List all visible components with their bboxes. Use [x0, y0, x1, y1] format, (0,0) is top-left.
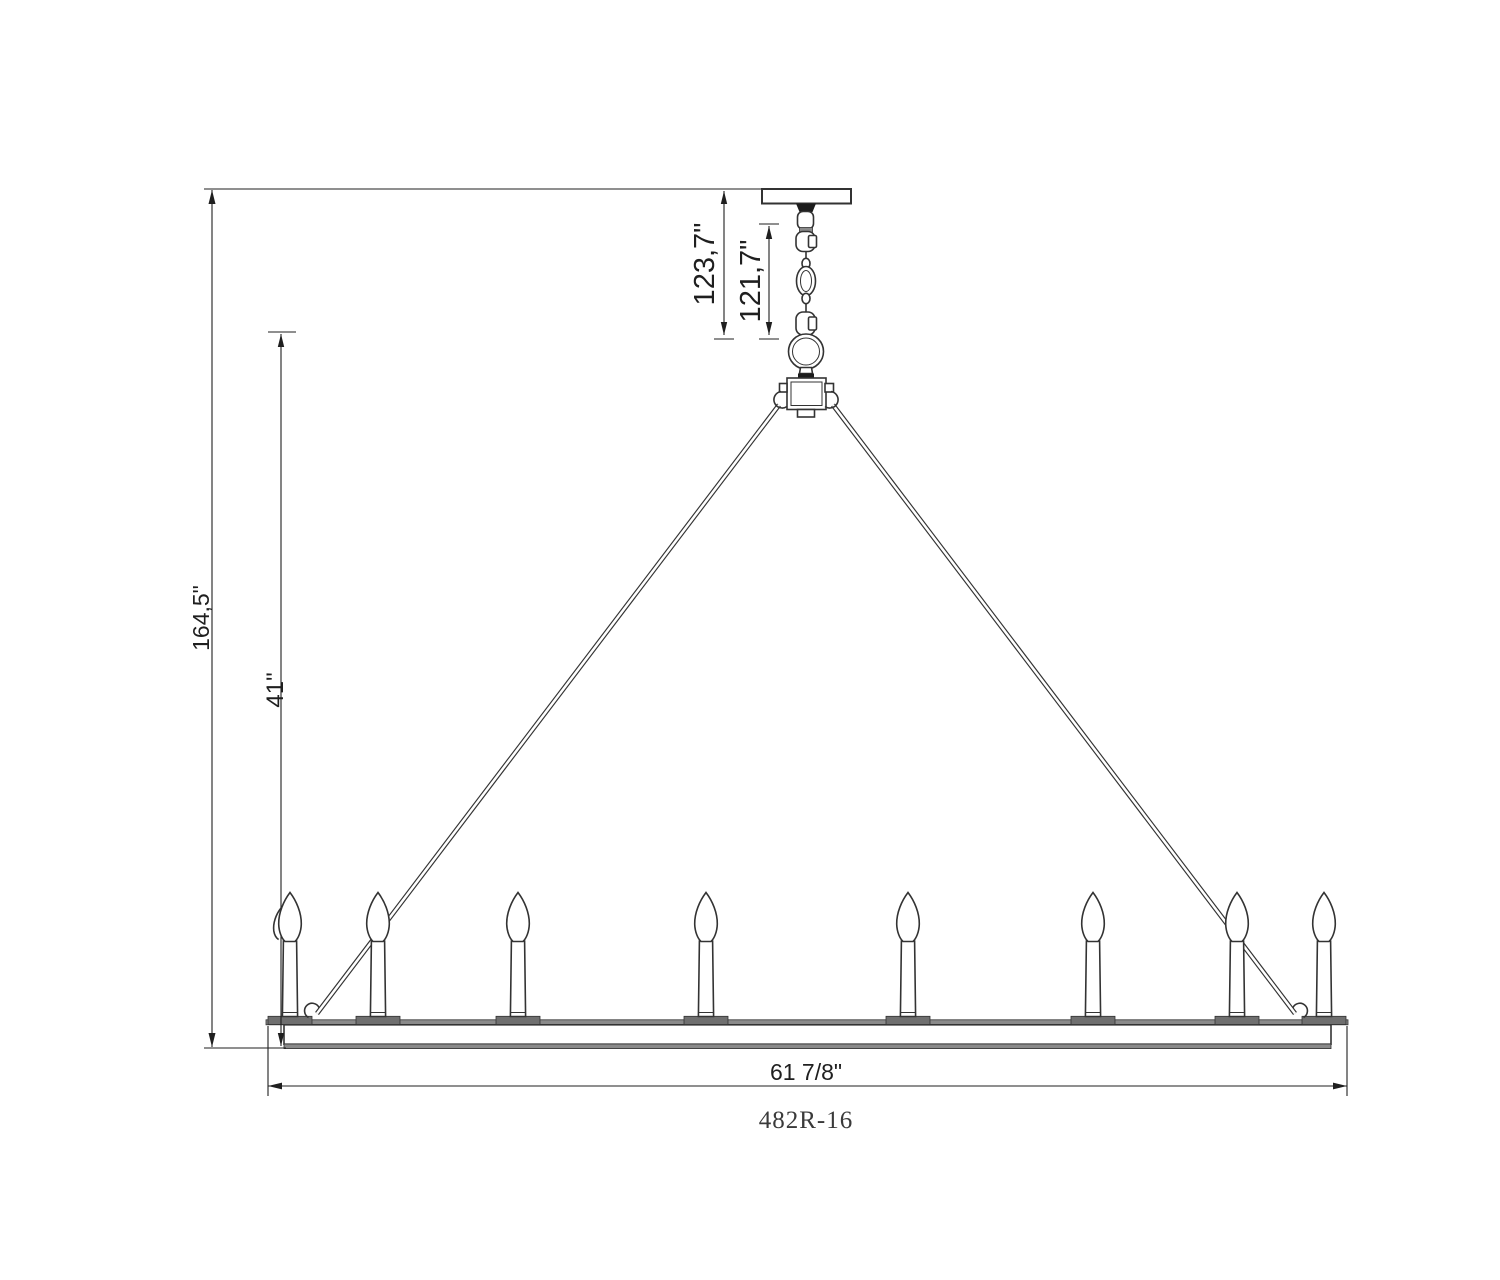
arrow-down-icon	[209, 1033, 216, 1047]
candle-base-plate	[356, 1016, 400, 1024]
canopy-to-ring-label: 123,7"	[689, 223, 721, 306]
hub-body	[787, 378, 826, 410]
candle-sleeve	[510, 941, 525, 1017]
candle	[1313, 893, 1336, 1017]
hub-neck	[800, 368, 813, 374]
dimension-canopy-to-ring: 123,7"	[689, 191, 734, 339]
carabiner-screw	[809, 317, 817, 330]
candle-bulb	[507, 893, 530, 942]
candle-bulb	[1313, 893, 1336, 942]
candle-bulb	[367, 893, 390, 942]
candle-sleeve	[1085, 941, 1100, 1017]
arrow-up-icon	[209, 190, 216, 204]
fixture-height-label: 41"	[262, 672, 289, 707]
ceiling-canopy	[762, 189, 851, 204]
candle-base-plate	[1302, 1016, 1346, 1024]
candle-sleeve	[698, 941, 713, 1017]
arrow-up-icon	[278, 334, 284, 347]
candle-base-plate	[1215, 1016, 1259, 1024]
candle-sleeve	[282, 941, 297, 1017]
candle-base-plate	[496, 1016, 540, 1024]
ring-bottom-flange	[284, 1044, 1331, 1049]
ring-bar-body	[284, 1025, 1331, 1044]
suspension-ring	[789, 334, 824, 369]
arrow-up-icon	[766, 226, 772, 239]
top-assembly	[762, 189, 851, 417]
dimension-overall-height: 164,5"	[188, 190, 216, 1047]
candle-sleeve	[900, 941, 915, 1017]
hub-hook-left	[774, 392, 787, 409]
dimension-annotations: 164,5" 41" 123,7" 121,7"	[188, 189, 1347, 1134]
candle	[507, 893, 530, 1017]
chain-length-label: 121,7"	[735, 240, 767, 323]
arrow-down-icon	[766, 322, 772, 335]
candle-sleeve	[1229, 941, 1244, 1017]
chain-link-small	[802, 293, 810, 303]
candle	[1082, 893, 1105, 1017]
candle-base-plate	[268, 1016, 312, 1024]
hanging-chain	[796, 212, 817, 336]
candle-base-plate	[684, 1016, 728, 1024]
ring-bar	[266, 1016, 1348, 1048]
hub-tab-bottom	[798, 410, 815, 418]
candle-bulb	[1082, 893, 1105, 942]
hub-hook-right	[825, 392, 838, 409]
candle-sleeve	[370, 941, 385, 1017]
candle-sleeve	[1316, 941, 1331, 1017]
ring-width-label: 61 7/8"	[770, 1059, 842, 1085]
candle	[897, 893, 920, 1017]
hub-tab-right	[825, 384, 834, 393]
candles	[279, 893, 1336, 1017]
dimension-drawing-canvas: 164,5" 41" 123,7" 121,7"	[0, 0, 1500, 1280]
arrow-down-icon	[721, 322, 727, 335]
candle	[695, 893, 718, 1017]
candle	[367, 893, 390, 1017]
candle-bulb	[695, 893, 718, 942]
candle-bulb	[1226, 893, 1249, 942]
arrow-up-icon	[721, 191, 727, 204]
carabiner-screw	[809, 236, 817, 248]
arrow-right-icon	[1333, 1083, 1347, 1090]
candle-base-plate	[1071, 1016, 1115, 1024]
candle	[1226, 893, 1249, 1017]
center-hub	[774, 368, 838, 418]
candle-base-plate	[886, 1016, 930, 1024]
arrow-left-icon	[268, 1083, 282, 1090]
candle-bulb	[279, 893, 302, 942]
dimension-chain-length: 121,7"	[735, 224, 779, 339]
chandelier-dimension-drawing: 164,5" 41" 123,7" 121,7"	[0, 0, 1500, 1280]
hub-tab-left	[780, 384, 788, 393]
chain-link	[798, 212, 814, 230]
product-code-label: 482R-16	[759, 1107, 854, 1134]
candle	[279, 893, 302, 1017]
candle-bulb	[897, 893, 920, 942]
overall-height-label: 164,5"	[188, 585, 214, 651]
